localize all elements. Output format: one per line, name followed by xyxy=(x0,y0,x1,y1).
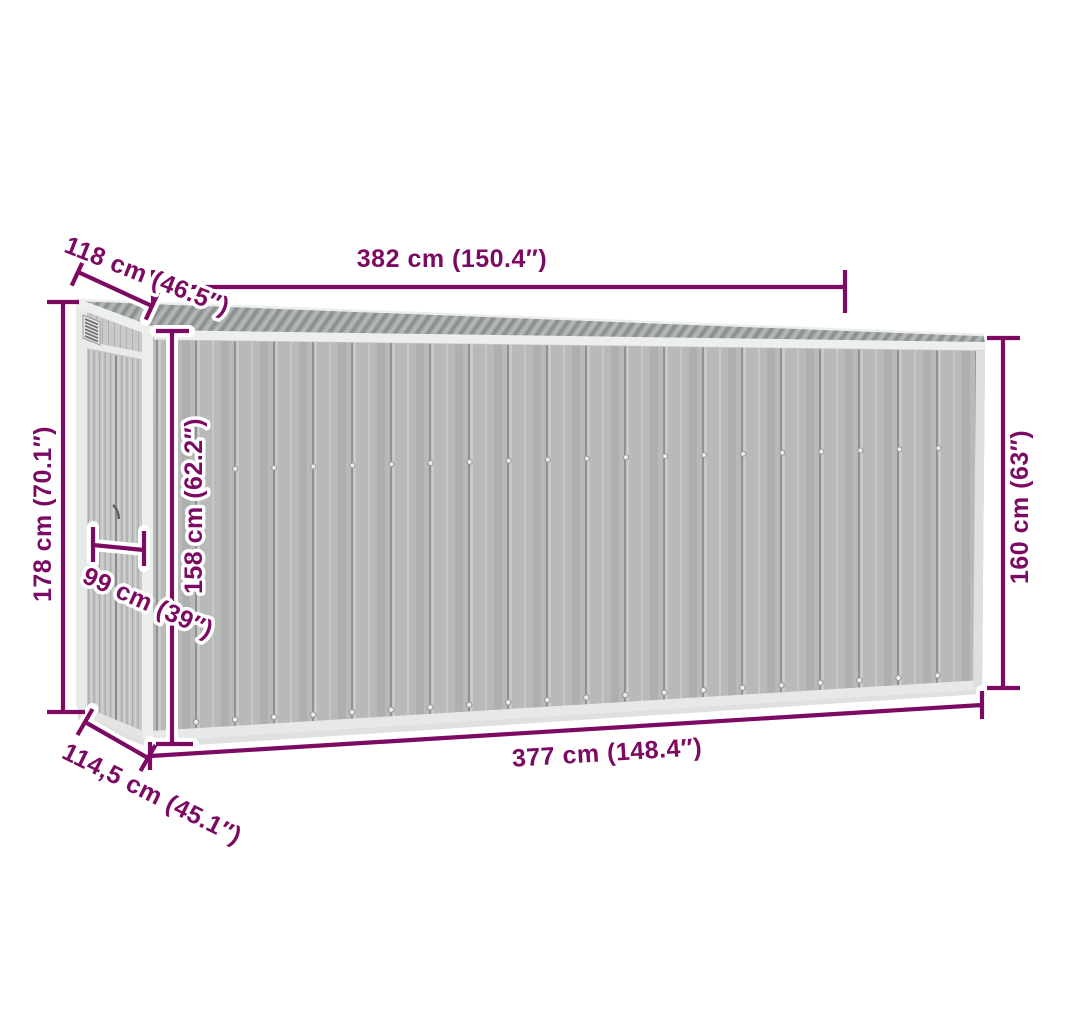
shed-illustration xyxy=(76,298,985,748)
label-back-height: 178 cm (70.1″) xyxy=(29,426,57,602)
shed-dimension-svg: 382 cm (150.4″) 118 cm (46.5″) 178 cm (7… xyxy=(0,0,1069,1024)
back-corner-trim xyxy=(76,299,87,711)
label-front-right-height: 160 cm (63″) xyxy=(1006,430,1034,584)
label-roof-length: 382 cm (150.4″) xyxy=(357,245,547,273)
product-dimension-diagram: 382 cm (150.4″) 118 cm (46.5″) 178 cm (7… xyxy=(0,0,1069,1024)
label-front-left-height: 158 cm (62.2″) xyxy=(180,418,208,594)
